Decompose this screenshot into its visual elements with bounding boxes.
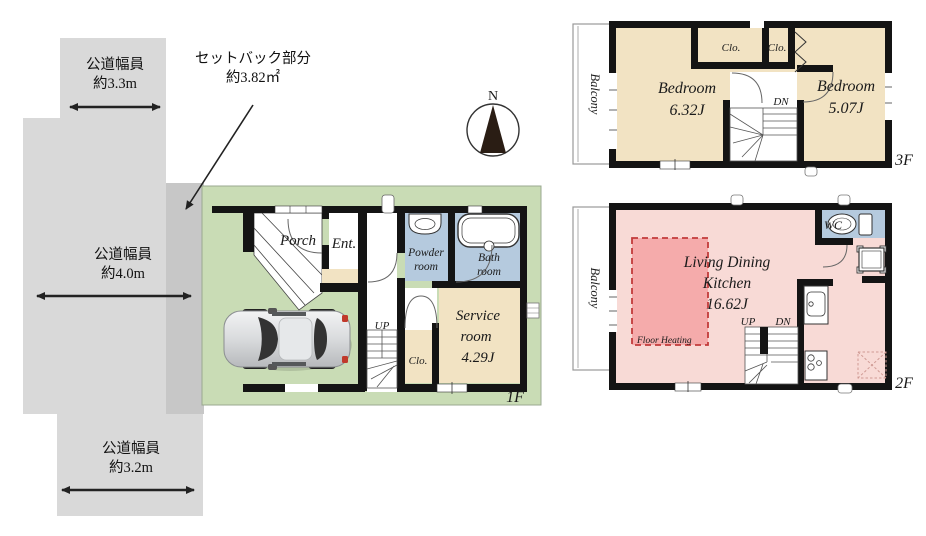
road-top-label-line2: 約3.3m <box>59 75 171 94</box>
setback-label-line2: 約3.82㎡ <box>191 69 315 88</box>
setback-label-line1: セットバック部分 <box>191 50 315 69</box>
road-middle-label-line1: 公道幅員 <box>67 246 179 265</box>
road-bottom-label-line2: 約3.2m <box>75 459 187 478</box>
setback-label: セットバック部分 約3.82㎡ <box>191 50 315 88</box>
road-middle-label: 公道幅員 約4.0m <box>67 246 179 284</box>
road-bottom-label: 公道幅員 約3.2m <box>75 440 187 478</box>
floorplan-sheet: 公道幅員 約3.3m セットバック部分 約3.82㎡ 公道幅員 約4.0m 公道… <box>0 0 926 536</box>
road-bottom-label-line1: 公道幅員 <box>75 440 187 459</box>
road-middle-label-line2: 約4.0m <box>67 265 179 284</box>
road-top-label: 公道幅員 約3.3m <box>59 56 171 94</box>
setback-pointer-arrow <box>186 105 253 209</box>
road-top-label-line1: 公道幅員 <box>59 56 171 75</box>
